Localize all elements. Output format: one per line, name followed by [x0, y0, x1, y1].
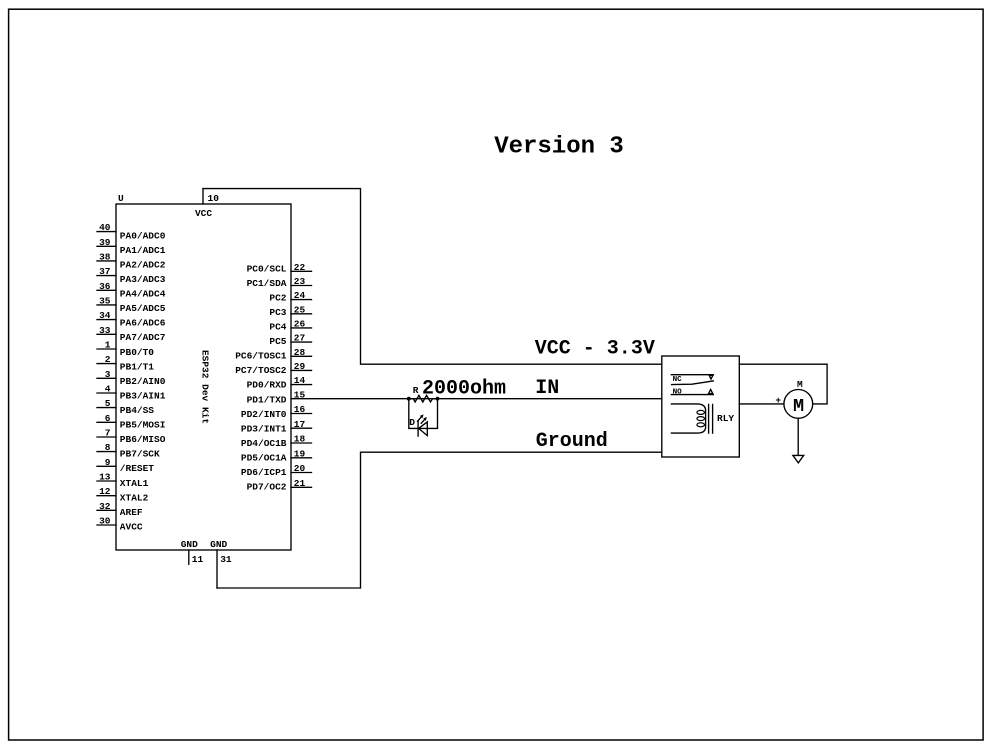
- svg-text:AREF: AREF: [120, 507, 143, 518]
- svg-text:AVCC: AVCC: [120, 521, 143, 532]
- svg-text:PC4: PC4: [269, 322, 286, 333]
- svg-text:PA3/ADC3: PA3/ADC3: [120, 274, 166, 285]
- svg-text:19: 19: [294, 448, 306, 459]
- svg-text:17: 17: [294, 419, 306, 430]
- svg-text:U: U: [118, 193, 124, 204]
- svg-text:NC: NC: [673, 376, 683, 384]
- svg-text:23: 23: [294, 276, 306, 287]
- svg-text:3: 3: [105, 369, 111, 380]
- svg-text:34: 34: [99, 310, 111, 321]
- svg-text:PA6/ADC6: PA6/ADC6: [120, 318, 166, 329]
- svg-text:7: 7: [105, 428, 111, 439]
- svg-text:PA0/ADC0: PA0/ADC0: [120, 230, 166, 241]
- svg-text:12: 12: [99, 486, 111, 497]
- svg-text:31: 31: [220, 554, 232, 565]
- svg-text:ESP32 Dev Kit: ESP32 Dev Kit: [200, 350, 211, 424]
- svg-text:25: 25: [294, 304, 306, 315]
- svg-text:PB4/SS: PB4/SS: [120, 405, 155, 416]
- svg-text:4: 4: [105, 384, 111, 395]
- svg-text:35: 35: [99, 295, 111, 306]
- svg-text:27: 27: [294, 333, 306, 344]
- svg-text:PB5/MOSI: PB5/MOSI: [120, 420, 166, 431]
- svg-text:2: 2: [105, 354, 111, 365]
- svg-text:GND: GND: [210, 539, 227, 550]
- svg-text:32: 32: [99, 501, 111, 512]
- svg-text:PC7/TOSC2: PC7/TOSC2: [235, 365, 287, 376]
- svg-text:36: 36: [99, 281, 111, 292]
- svg-text:33: 33: [99, 325, 111, 336]
- svg-text:13: 13: [99, 472, 111, 483]
- svg-text:PB1/T1: PB1/T1: [120, 361, 155, 372]
- svg-text:28: 28: [294, 347, 306, 358]
- svg-text:29: 29: [294, 361, 306, 372]
- svg-text:GND: GND: [181, 539, 198, 550]
- svg-text:PD1/TXD: PD1/TXD: [247, 394, 287, 405]
- svg-text:XTAL1: XTAL1: [120, 478, 149, 489]
- svg-text:VCC: VCC: [195, 208, 212, 219]
- svg-text:PB0/T0: PB0/T0: [120, 347, 155, 358]
- svg-text:PD7/OC2: PD7/OC2: [247, 481, 287, 492]
- svg-text:40: 40: [99, 222, 111, 233]
- svg-text:PB6/MISO: PB6/MISO: [120, 434, 166, 445]
- svg-text:PD2/INT0: PD2/INT0: [241, 409, 287, 420]
- svg-text:38: 38: [99, 251, 111, 262]
- svg-text:PA2/ADC2: PA2/ADC2: [120, 260, 166, 271]
- svg-text:PD5/OC1A: PD5/OC1A: [241, 452, 287, 463]
- svg-text:PC2: PC2: [269, 293, 286, 304]
- svg-text:PA4/ADC4: PA4/ADC4: [120, 289, 166, 300]
- svg-text:PC0/SCL: PC0/SCL: [247, 264, 287, 275]
- svg-text:6: 6: [105, 413, 111, 424]
- svg-text:IN: IN: [535, 377, 559, 400]
- svg-text:10: 10: [208, 193, 220, 204]
- svg-text:26: 26: [294, 319, 306, 330]
- svg-text:11: 11: [192, 554, 204, 565]
- svg-text:D: D: [409, 417, 415, 428]
- svg-text:PD0/RXD: PD0/RXD: [247, 380, 287, 391]
- svg-text:PA5/ADC5: PA5/ADC5: [120, 303, 166, 314]
- svg-text:39: 39: [99, 237, 111, 248]
- svg-text:24: 24: [294, 290, 306, 301]
- svg-text:VCC - 3.3V: VCC - 3.3V: [535, 337, 655, 360]
- svg-text:16: 16: [294, 404, 306, 415]
- svg-text:21: 21: [294, 478, 306, 489]
- svg-text:1: 1: [105, 340, 111, 351]
- svg-text:PC1/SDA: PC1/SDA: [247, 278, 287, 289]
- svg-text:PA1/ADC1: PA1/ADC1: [120, 245, 166, 256]
- svg-text:M: M: [793, 396, 804, 417]
- svg-text:PB7/SCK: PB7/SCK: [120, 449, 160, 460]
- svg-text:18: 18: [294, 434, 306, 445]
- svg-text:R: R: [413, 385, 419, 396]
- svg-text:14: 14: [294, 375, 306, 386]
- svg-text:PD3/INT1: PD3/INT1: [241, 423, 287, 434]
- svg-text:NO: NO: [673, 389, 683, 397]
- svg-text:PD4/OC1B: PD4/OC1B: [241, 438, 287, 449]
- svg-text:37: 37: [99, 266, 111, 277]
- svg-text:M: M: [797, 379, 803, 390]
- svg-text:PB2/AIN0: PB2/AIN0: [120, 376, 166, 387]
- svg-text:20: 20: [294, 463, 306, 474]
- svg-text:PB3/AIN1: PB3/AIN1: [120, 391, 166, 402]
- svg-text:/RESET: /RESET: [120, 463, 155, 474]
- svg-text:30: 30: [99, 516, 111, 527]
- svg-text:PD6/ICP1: PD6/ICP1: [241, 467, 287, 478]
- svg-text:+: +: [775, 395, 781, 406]
- svg-text:RLY: RLY: [717, 413, 734, 424]
- svg-text:5: 5: [105, 398, 111, 409]
- svg-text:8: 8: [105, 442, 111, 453]
- svg-text:9: 9: [105, 457, 111, 468]
- svg-text:XTAL2: XTAL2: [120, 492, 149, 503]
- svg-text:Version 3: Version 3: [494, 134, 624, 161]
- svg-text:PC3: PC3: [269, 307, 286, 318]
- svg-text:Ground: Ground: [536, 430, 608, 453]
- svg-text:PA7/ADC7: PA7/ADC7: [120, 332, 166, 343]
- svg-text:2000ohm: 2000ohm: [422, 377, 506, 400]
- svg-text:22: 22: [294, 262, 306, 273]
- svg-text:PC6/TOSC1: PC6/TOSC1: [235, 351, 287, 362]
- svg-text:PC5: PC5: [269, 336, 286, 347]
